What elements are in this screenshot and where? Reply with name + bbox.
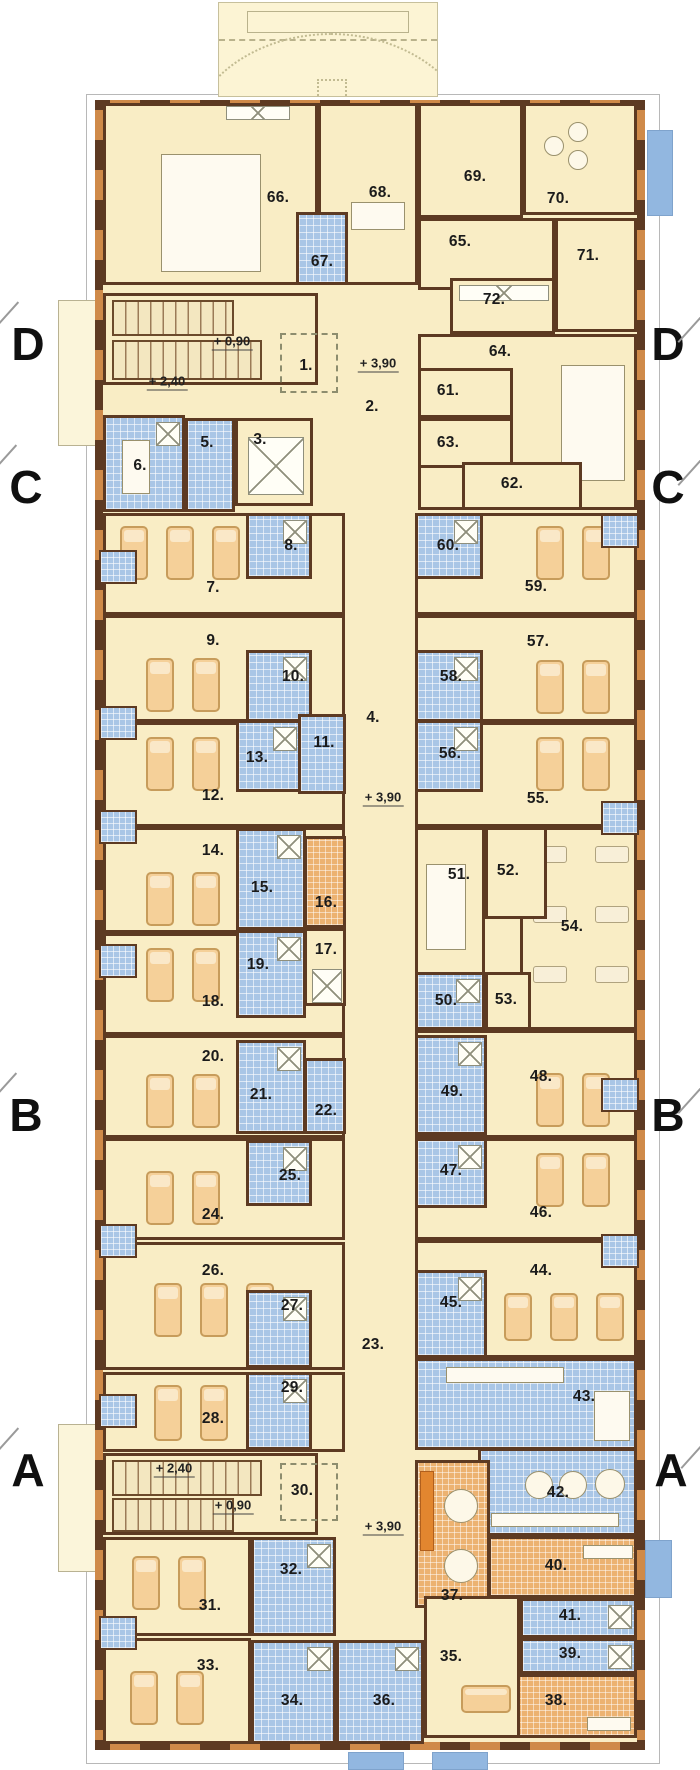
room-label-66: 66.: [267, 189, 289, 207]
shower: [456, 979, 480, 1003]
room-45: [415, 1270, 487, 1358]
room-22: [304, 1058, 346, 1134]
room-label-3: 3.: [253, 431, 266, 449]
room-label-63: 63.: [437, 434, 459, 452]
bed: [200, 1283, 228, 1337]
section-letter: D: [11, 318, 44, 370]
counter: [583, 1545, 633, 1559]
section-letter: B: [9, 1089, 42, 1141]
xbox: [226, 106, 290, 120]
shower: [156, 422, 180, 446]
canopy-ridge: [247, 11, 409, 33]
room-label-33: 33.: [197, 1657, 219, 1675]
room-3: [235, 418, 313, 506]
room-33: [103, 1638, 251, 1744]
room-label-50: 50.: [435, 992, 457, 1010]
room-label-48: 48.: [530, 1068, 552, 1086]
elevation-label: + 3,90: [363, 1519, 404, 1536]
room-label-60: 60.: [437, 537, 459, 555]
bed: [192, 872, 220, 926]
bed: [154, 1385, 182, 1441]
bed: [192, 737, 220, 791]
bed: [536, 737, 564, 791]
entrance-pad: [348, 1752, 404, 1770]
room-71: [555, 218, 637, 332]
rec: [533, 966, 567, 983]
section-marker-d-left: D: [11, 321, 44, 367]
section-letter: C: [9, 461, 42, 513]
room-label-45: 45.: [440, 1294, 462, 1312]
bed: [192, 1074, 220, 1128]
room-label-64: 64.: [489, 343, 511, 361]
room-label-69: 69.: [464, 168, 486, 186]
room-35: [424, 1596, 520, 1738]
bed: [132, 1556, 160, 1610]
room-label-37: 37.: [441, 1587, 463, 1605]
room-label-12: 12.: [202, 787, 224, 805]
round: [595, 1469, 625, 1499]
bed: [536, 660, 564, 714]
xbox: [312, 969, 342, 1003]
room-label-51: 51.: [448, 866, 470, 884]
section-letter: C: [651, 461, 684, 513]
shower: [395, 1647, 419, 1671]
room-61: [418, 368, 513, 418]
room-label-7: 7.: [206, 579, 219, 597]
bed: [146, 872, 174, 926]
room-label-21: 21.: [250, 1086, 272, 1104]
room-label-39: 39.: [559, 1645, 581, 1663]
hall-label-2: 2.: [365, 398, 378, 416]
section-marker-c-right: C: [651, 464, 684, 510]
room-label-65: 65.: [449, 233, 471, 251]
room-label-19: 19.: [247, 956, 269, 974]
counter: [594, 1391, 630, 1441]
room-label-22: 22.: [315, 1102, 337, 1120]
room-label-27: 27.: [281, 1297, 303, 1315]
room-label-16: 16.: [315, 894, 337, 912]
balcony: [58, 1424, 98, 1572]
bed: [166, 526, 194, 580]
room-label-38: 38.: [545, 1692, 567, 1710]
bed: [504, 1293, 532, 1341]
room-label-13: 13.: [246, 749, 268, 767]
room-label-57: 57.: [527, 633, 549, 651]
room-label-46: 46.: [530, 1204, 552, 1222]
hot: [420, 1471, 434, 1551]
room-label-42: 42.: [547, 1484, 569, 1502]
room-label-43: 43.: [573, 1388, 595, 1406]
room-69: [418, 103, 523, 218]
floor-plan-canvas: 66.68.69.70.65.71.72.67.64.61.63.62.6.5.…: [0, 0, 700, 1770]
room-label-61: 61.: [437, 382, 459, 400]
rec: [595, 906, 629, 923]
section-marker-b-left: B: [9, 1092, 42, 1138]
shower: [458, 1042, 482, 1066]
room-label-24: 24.: [202, 1206, 224, 1224]
washbasin-niche: [99, 944, 137, 978]
washbasin-niche: [601, 801, 639, 835]
counter: [161, 154, 261, 272]
rec: [595, 846, 629, 863]
washbasin-niche: [601, 1234, 639, 1268]
room-label-40: 40.: [545, 1557, 567, 1575]
room-label-11: 11.: [313, 734, 334, 752]
staircase: [112, 300, 234, 336]
room-11: [298, 714, 346, 794]
room-label-53: 53.: [495, 991, 517, 1009]
washbasin-niche: [601, 1078, 639, 1112]
entrance-pad: [647, 130, 673, 216]
room-label-55: 55.: [527, 790, 549, 808]
balcony: [58, 300, 98, 446]
room-label-35: 35.: [440, 1648, 462, 1666]
shower: [277, 1047, 301, 1071]
shower: [307, 1647, 331, 1671]
room-19: [236, 930, 306, 1018]
bed: [582, 737, 610, 791]
rec: [595, 966, 629, 983]
round: [444, 1489, 478, 1523]
round: [544, 136, 564, 156]
washbasin-niche: [99, 1616, 137, 1650]
elevation-label: + 0,90: [213, 1498, 254, 1515]
washbasin-niche: [99, 706, 137, 740]
hall-label-23: 23.: [362, 1336, 384, 1354]
room-37: [415, 1460, 490, 1608]
room-63: [418, 418, 513, 468]
bed: [550, 1293, 578, 1341]
room-label-52: 52.: [497, 862, 519, 880]
room-label-20: 20.: [202, 1048, 224, 1066]
shower: [608, 1645, 632, 1669]
bed: [461, 1685, 511, 1713]
room-label-26: 26.: [202, 1262, 224, 1280]
room-label-58: 58.: [440, 668, 462, 686]
counter: [587, 1717, 631, 1731]
section-letter: B: [651, 1089, 684, 1141]
room-5: [185, 418, 235, 512]
room-8: [246, 513, 312, 579]
entrance-canopy: [218, 2, 438, 97]
bed: [582, 1153, 610, 1207]
room-label-36: 36.: [373, 1692, 395, 1710]
room-label-56: 56.: [439, 745, 461, 763]
room-58: [415, 650, 483, 722]
canopy-link: [317, 79, 347, 97]
hall-label-4: 4.: [366, 709, 379, 727]
bed: [536, 526, 564, 580]
room-label-6: 6.: [133, 457, 146, 475]
room-label-44: 44.: [530, 1262, 552, 1280]
bed: [146, 1171, 174, 1225]
room-label-30: 30.: [291, 1482, 313, 1500]
bed: [212, 526, 240, 580]
bed: [582, 660, 610, 714]
room-label-62: 62.: [501, 475, 523, 493]
elevation-label: + 2,40: [154, 1461, 195, 1478]
section-letter: A: [11, 1444, 44, 1496]
entrance-pad: [645, 1540, 672, 1598]
room-label-47: 47.: [440, 1162, 462, 1180]
washbasin-niche: [99, 1224, 137, 1258]
washbasin-niche: [99, 1394, 137, 1428]
room-label-72: 72.: [483, 291, 505, 309]
elevation-label: + 3,90: [358, 356, 399, 373]
counter: [446, 1367, 564, 1383]
round: [568, 150, 588, 170]
room-label-9: 9.: [206, 632, 219, 650]
room-label-29: 29.: [281, 1379, 303, 1397]
room-label-67: 67.: [311, 253, 333, 271]
round: [444, 1549, 478, 1583]
section-marker-d-right: D: [651, 321, 684, 367]
room-32: [251, 1537, 336, 1636]
room-label-41: 41.: [559, 1607, 581, 1625]
round: [568, 122, 588, 142]
room-label-31: 31.: [199, 1597, 221, 1615]
elevation-label: + 2,40: [147, 374, 188, 391]
section-letter: A: [654, 1444, 687, 1496]
bed: [596, 1293, 624, 1341]
elevation-label: + 3,90: [363, 790, 404, 807]
room-label-28: 28.: [202, 1410, 224, 1428]
entrance-pad: [432, 1752, 488, 1770]
room-51: [415, 827, 485, 975]
bed: [146, 658, 174, 712]
room-label-18: 18.: [202, 993, 224, 1011]
section-marker-a-right: A: [654, 1447, 687, 1493]
bed: [146, 948, 174, 1002]
bed: [536, 1153, 564, 1207]
washbasin-niche: [99, 810, 137, 844]
room-17: [304, 928, 346, 1006]
room-label-25: 25.: [279, 1167, 301, 1185]
room-label-59: 59.: [525, 578, 547, 596]
room-label-68: 68.: [369, 184, 391, 202]
room-label-8: 8.: [284, 537, 297, 555]
section-marker-c-left: C: [9, 464, 42, 510]
washbasin-niche: [601, 514, 639, 548]
room-70: [523, 103, 637, 215]
room-67: [296, 212, 348, 285]
room-label-70: 70.: [547, 190, 569, 208]
room-10: [246, 650, 312, 722]
washbasin-niche: [99, 550, 137, 584]
room-label-15: 15.: [251, 879, 273, 897]
room-label-1: 1.: [299, 357, 312, 375]
room-label-17: 17.: [315, 941, 337, 959]
room-label-10: 10.: [282, 668, 304, 686]
bed: [154, 1283, 182, 1337]
room-label-71: 71.: [577, 247, 599, 265]
room-label-32: 32.: [280, 1561, 302, 1579]
section-marker-a-left: A: [11, 1447, 44, 1493]
room-16: [304, 836, 346, 928]
shower: [307, 1544, 331, 1568]
bed: [176, 1671, 204, 1725]
counter: [351, 202, 405, 230]
window-band-right: [637, 110, 645, 1740]
bed: [146, 737, 174, 791]
elevation-label: + 0,90: [212, 334, 253, 351]
section-marker-b-right: B: [651, 1092, 684, 1138]
window-band-left: [95, 110, 103, 1740]
room-label-54: 54.: [561, 918, 583, 936]
room-label-5: 5.: [200, 434, 213, 452]
room-label-49: 49.: [441, 1083, 463, 1101]
shower: [277, 937, 301, 961]
bed: [146, 1074, 174, 1128]
room-label-14: 14.: [202, 842, 224, 860]
bed: [192, 658, 220, 712]
shower: [277, 835, 301, 859]
shower: [273, 727, 297, 751]
room-43: [415, 1358, 637, 1450]
section-letter: D: [651, 318, 684, 370]
counter: [491, 1513, 619, 1527]
shower: [608, 1605, 632, 1629]
bed: [130, 1671, 158, 1725]
room-label-34: 34.: [281, 1692, 303, 1710]
